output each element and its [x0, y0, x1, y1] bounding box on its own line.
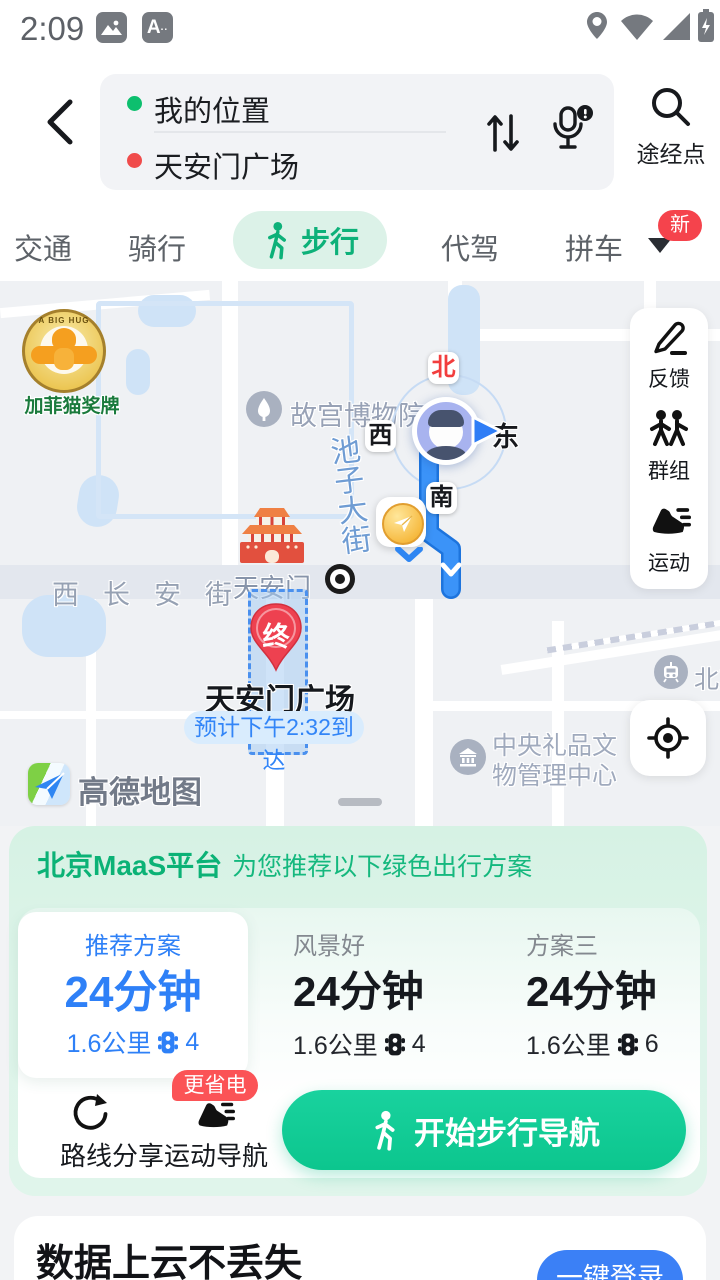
crosshair-icon: [646, 716, 690, 760]
field-divider: [154, 131, 446, 133]
wifi-icon: [620, 13, 654, 45]
option-2-duration[interactable]: 24分钟: [293, 958, 424, 1019]
eta-pill: 预计下午2:32到达: [184, 711, 364, 744]
swap-endpoints-icon[interactable]: [484, 110, 522, 161]
cellular-signal-icon: [663, 13, 690, 45]
screenshot-notification-icon: [96, 12, 127, 43]
traffic-light-icon: [385, 1032, 405, 1057]
origin-field[interactable]: 我的位置: [154, 88, 270, 130]
battery-icon: [697, 9, 715, 47]
group-button[interactable]: 群组: [630, 400, 708, 492]
map-tools-panel: 反馈 群组 运动: [630, 308, 708, 589]
tab-walking-label: 步行: [301, 219, 359, 261]
traffic-light-icon: [158, 1030, 178, 1055]
status-time: 2:09: [20, 10, 84, 48]
search-icon: [648, 84, 694, 130]
feedback-button[interactable]: 反馈: [630, 308, 708, 400]
tab-chauffeur[interactable]: 代驾: [441, 226, 499, 268]
map-canvas[interactable]: A BIG HUG 加菲猫奖牌 故宫博物院 北 西 南 东 池子大街: [0, 281, 720, 826]
running-shoe-icon: [647, 499, 691, 543]
destination-pin[interactable]: 终: [245, 601, 307, 682]
location-status-icon: [585, 11, 609, 46]
tab-walking-active[interactable]: 步行: [233, 211, 387, 269]
waypoint-label: 途经点: [624, 135, 718, 169]
reward-coin-marker[interactable]: [376, 497, 426, 547]
top-bar: 2:09 A.. 我的位置 天安门广场: [0, 0, 720, 281]
start-walking-nav-button[interactable]: 开始步行导航: [282, 1090, 686, 1170]
pencil-icon: [647, 315, 691, 359]
destination-field[interactable]: 天安门广场: [154, 144, 299, 186]
destination-dot-icon: [127, 153, 142, 168]
maas-title: 北京MaaS平台: [37, 850, 222, 881]
back-button[interactable]: [42, 96, 82, 148]
option-3-duration[interactable]: 24分钟: [526, 958, 657, 1019]
tab-carpool[interactable]: 拼车: [565, 226, 623, 268]
voice-input-icon[interactable]: [548, 104, 600, 163]
origin-dot-icon: [127, 96, 142, 111]
one-tap-login-button[interactable]: 一键登录: [537, 1250, 683, 1280]
start-walking-nav-label: 开始步行导航: [414, 1108, 600, 1153]
cloud-sync-title: 数据上云不丢失: [36, 1232, 302, 1280]
walking-route-line: [0, 281, 720, 826]
option-3-label[interactable]: 方案三: [526, 926, 598, 961]
sport-button[interactable]: 运动: [630, 492, 708, 584]
amap-walk-route-screen: 2:09 A.. 我的位置 天安门广场: [0, 0, 720, 1280]
cloud-sync-card: 数据上云不丢失 一键登录: [14, 1216, 706, 1280]
route-options-sheet: 北京MaaS平台为您推荐以下绿色出行方案 推荐方案 24分钟 1.6公里 4 风…: [9, 826, 707, 1196]
route-chevron-icon: [394, 547, 424, 563]
new-badge: 新: [658, 210, 702, 241]
walking-person-white-icon: [368, 1109, 402, 1151]
walking-person-icon: [261, 220, 293, 260]
option-3-meta: 1.6公里 6: [526, 1026, 659, 1062]
tab-transit[interactable]: 交通: [14, 226, 72, 268]
option-2-meta: 1.6公里 4: [293, 1026, 426, 1062]
option-1-meta: 1.6公里 4: [18, 1024, 248, 1060]
group-people-icon: [647, 407, 691, 451]
input-method-notification-icon: A..: [142, 12, 173, 43]
maas-header: 北京MaaS平台为您推荐以下绿色出行方案: [37, 844, 532, 884]
add-waypoint-button[interactable]: 途经点: [624, 84, 718, 170]
compass-north: 北: [428, 352, 459, 384]
traffic-light-icon: [618, 1032, 638, 1057]
maas-subtitle: 为您推荐以下绿色出行方案: [232, 853, 532, 881]
compass-south: 南: [426, 482, 457, 514]
option-1-duration[interactable]: 24分钟: [18, 956, 248, 1020]
sport-nav-label[interactable]: 运动导航: [141, 1136, 291, 1173]
destination-pin-label: 终: [245, 615, 307, 654]
locate-me-button[interactable]: [630, 700, 706, 776]
feedback-label: 反馈: [648, 363, 690, 393]
share-route-icon: [68, 1092, 112, 1136]
route-point-icon: [325, 564, 355, 594]
heading-arrow-icon: [470, 415, 504, 447]
power-save-badge: 更省电: [172, 1070, 258, 1101]
option-2-label[interactable]: 风景好: [293, 926, 365, 961]
route-endpoints-panel: 我的位置 天安门广场: [100, 74, 614, 190]
share-route-button[interactable]: [68, 1092, 112, 1141]
tab-cycling[interactable]: 骑行: [128, 226, 186, 268]
sport-nav-button[interactable]: [192, 1094, 236, 1141]
group-label: 群组: [648, 455, 690, 485]
avatar-face: [417, 402, 475, 460]
coin-icon: [382, 503, 424, 545]
compass-west: 西: [365, 420, 396, 452]
sport-label: 运动: [648, 547, 690, 577]
